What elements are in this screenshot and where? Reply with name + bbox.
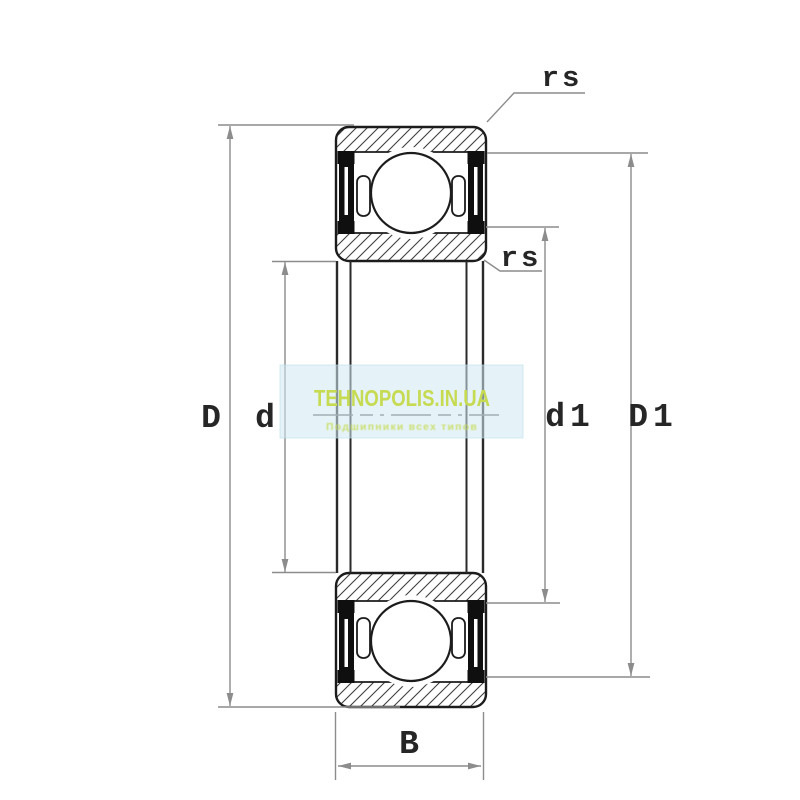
arrow-d1-down [542, 589, 549, 602]
arrow-d1-up [542, 228, 549, 241]
bearing-diagram-page: D d d1 D1 B rs rs TEHNOPOLIS.IN.UA Подши… [0, 0, 800, 800]
cage-left [357, 176, 370, 216]
bearing-top-section [336, 127, 486, 261]
arrow-d-down [282, 559, 289, 572]
label-B: B [399, 726, 419, 763]
seal-left [338, 151, 355, 234]
arrow-d-up [282, 262, 289, 275]
label-d1: d1 [545, 399, 595, 436]
arrow-D1-up [628, 154, 635, 167]
cage-right [452, 176, 465, 216]
arrow-D-up [227, 126, 234, 139]
arrow-B-right [468, 763, 481, 770]
arrow-B-left [338, 763, 351, 770]
seal-right [468, 151, 485, 234]
ball-bottom [371, 601, 451, 681]
arrow-D1-down [628, 663, 635, 676]
ball-top [371, 153, 451, 233]
rs-leader-top [487, 93, 585, 122]
bearing-drawing: D d d1 D1 B rs rs TEHNOPOLIS.IN.UA Подши… [0, 0, 800, 800]
label-d: d [255, 400, 275, 437]
label-rs-top: rs [542, 62, 583, 95]
watermark: TEHNOPOLIS.IN.UA Подшипники всех типов [280, 365, 523, 438]
watermark-site-text: TEHNOPOLIS.IN.UA [314, 385, 490, 411]
watermark-tagline-text: Подшипники всех типов [326, 421, 478, 433]
arrow-D-down [227, 693, 234, 706]
seal-left [338, 600, 355, 683]
cage-right [452, 618, 465, 658]
cage-left [357, 618, 370, 658]
label-D: D [201, 400, 221, 437]
label-rs-mid: rs [501, 242, 542, 275]
label-D1: D1 [628, 399, 678, 436]
bearing-bottom-section [336, 573, 486, 707]
seal-right [468, 600, 485, 683]
